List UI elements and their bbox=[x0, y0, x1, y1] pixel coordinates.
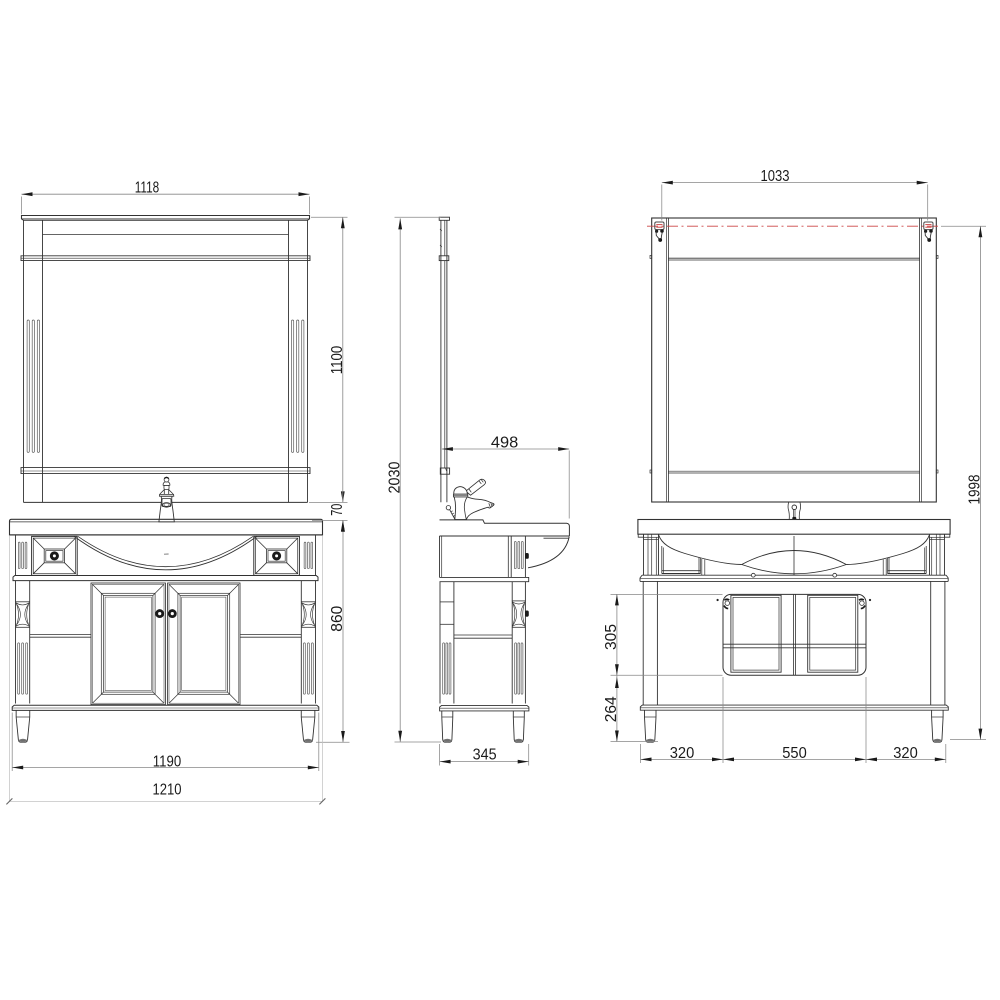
svg-text:1210: 1210 bbox=[153, 781, 182, 798]
svg-text:550: 550 bbox=[782, 745, 807, 762]
svg-text:70: 70 bbox=[329, 504, 346, 516]
svg-text:498: 498 bbox=[491, 435, 518, 452]
svg-text:345: 345 bbox=[473, 747, 497, 764]
svg-text:1998: 1998 bbox=[967, 475, 984, 505]
svg-text:1190: 1190 bbox=[153, 754, 181, 771]
svg-text:305: 305 bbox=[603, 624, 620, 650]
svg-text:1100: 1100 bbox=[329, 346, 346, 374]
svg-text:320: 320 bbox=[893, 745, 918, 762]
svg-text:264: 264 bbox=[603, 696, 620, 722]
svg-text:2030: 2030 bbox=[386, 462, 403, 494]
svg-text:1033: 1033 bbox=[761, 168, 790, 185]
svg-text:1118: 1118 bbox=[135, 179, 160, 196]
svg-text:320: 320 bbox=[670, 745, 695, 762]
svg-text:860: 860 bbox=[329, 606, 346, 632]
